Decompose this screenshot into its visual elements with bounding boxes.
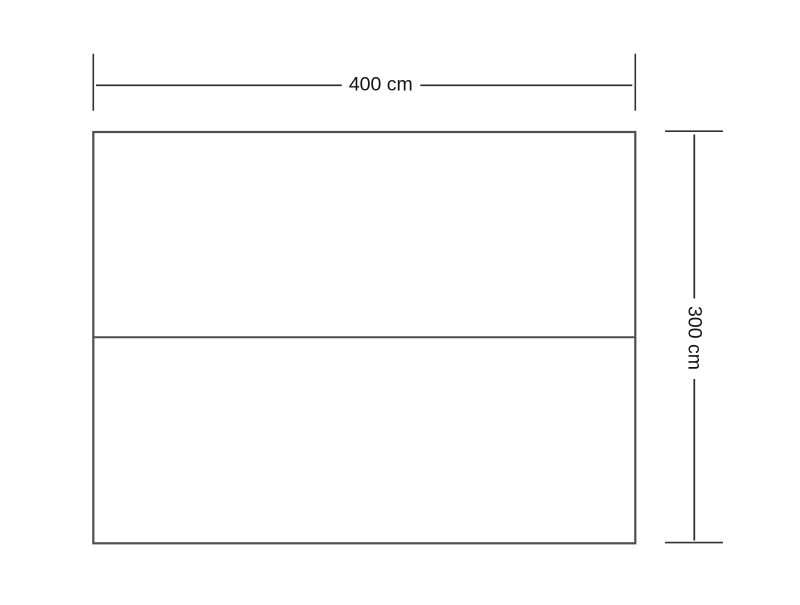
svg-text:300 cm: 300 cm (684, 306, 706, 370)
svg-text:400 cm: 400 cm (349, 73, 413, 95)
